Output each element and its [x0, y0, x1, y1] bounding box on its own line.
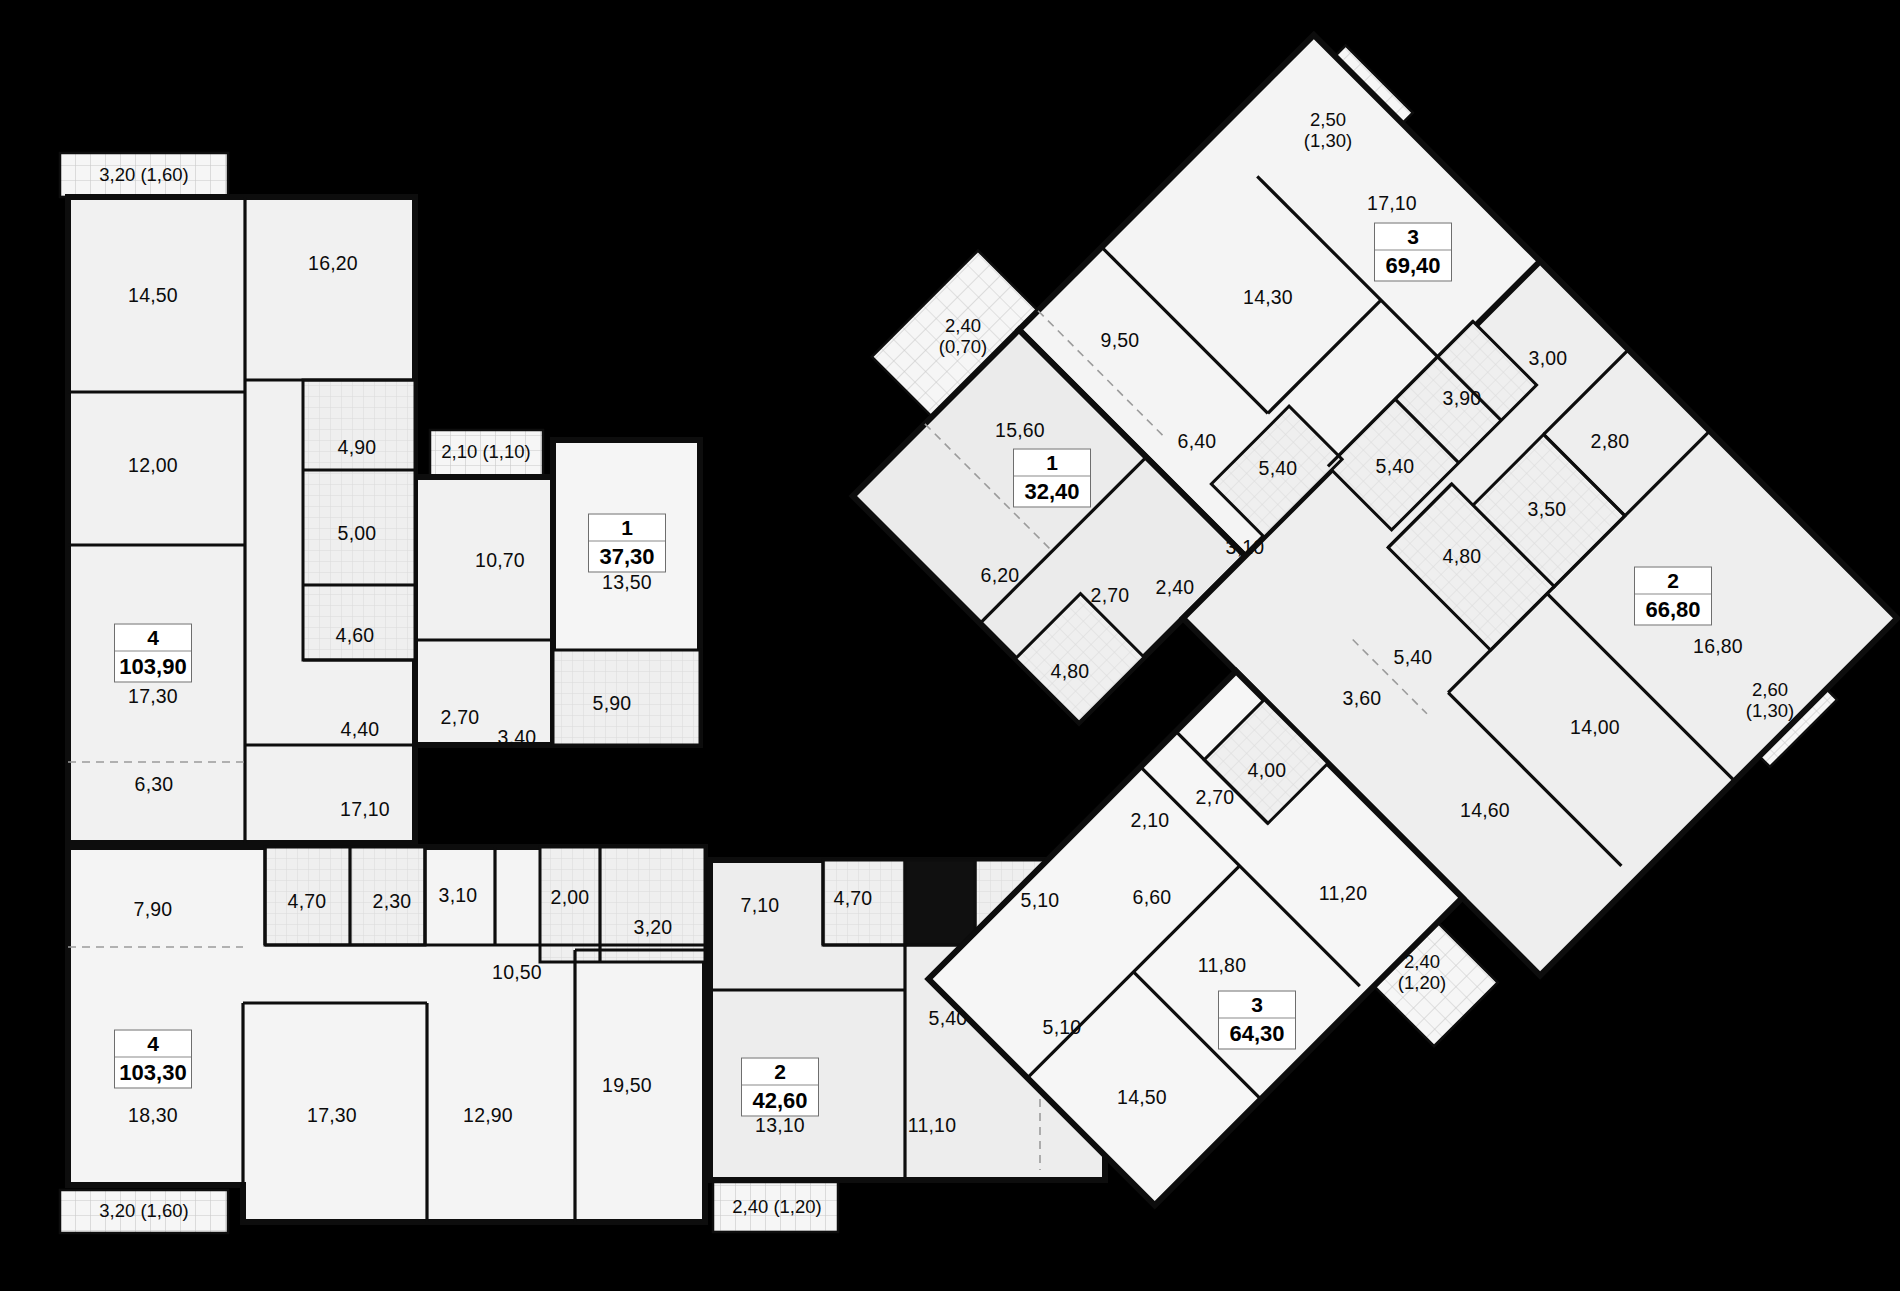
- room-area-label: 14,50: [1117, 1086, 1167, 1109]
- apartment-total-area: 64,30: [1219, 1019, 1295, 1049]
- apartment-id-badge: 3 69,40: [1374, 223, 1452, 282]
- apartment-number: 1: [589, 515, 665, 542]
- room-area-label: 17,10: [1367, 192, 1417, 215]
- apartment-total-area: 32,40: [1014, 477, 1090, 507]
- room-area-label: 12,90: [463, 1104, 513, 1127]
- apartment-total-area: 103,30: [115, 1058, 191, 1088]
- balcony-area-label: 2,40 (1,20): [687, 1197, 867, 1218]
- room-area-label: 5,00: [338, 522, 377, 545]
- room-area-label: 7,90: [134, 898, 173, 921]
- room-area-label: 11,10: [908, 1114, 956, 1137]
- room-area-label: 17,10: [340, 798, 390, 821]
- apartment-id-badge: 2 66,80: [1634, 567, 1712, 626]
- balcony-area-label: 2,40 (0,70): [920, 316, 1006, 357]
- room-area-label: 2,40: [1156, 576, 1195, 599]
- apartment-id-badge: 3 64,30: [1218, 991, 1296, 1050]
- room-area-label: 2,00: [551, 886, 590, 909]
- room-area-label: 6,60: [1133, 886, 1172, 909]
- room-area-label: 5,90: [593, 692, 632, 715]
- room-area-label: 4,40: [341, 718, 380, 741]
- room-area-label: 5,10: [1021, 889, 1060, 912]
- apartment-id-badge: 4 103,90: [114, 624, 192, 683]
- balcony-area-label: 3,20 (1,60): [54, 165, 234, 186]
- balcony-area-label: 2,50 (1,30): [1285, 110, 1371, 151]
- balcony-area-label: 2,10 (1,10): [396, 442, 576, 463]
- apartment-number: 3: [1219, 992, 1295, 1019]
- apartment-id-badge: 1 32,40: [1013, 449, 1091, 508]
- room-area-label: 9,50: [1101, 329, 1140, 352]
- room-area-label: 5,40: [929, 1007, 968, 1030]
- room-area-label: 3,50: [1528, 498, 1567, 521]
- room-area-label: 13,50: [602, 571, 652, 594]
- apartment-id-badge: 2 42,60: [741, 1058, 819, 1117]
- room-area-label: 3,00: [1529, 347, 1568, 370]
- room-area-label: 11,80: [1198, 954, 1246, 977]
- room-area-label: 2,80: [1591, 430, 1630, 453]
- room-area-label: 18,30: [128, 1104, 178, 1127]
- room-area-label: 3,40: [498, 726, 537, 749]
- room-area-label: 19,50: [602, 1074, 652, 1097]
- room-area-label: 5,40: [1376, 455, 1415, 478]
- room-area-label: 3,20: [634, 916, 673, 939]
- labels-layer: 3,20 (1,60) 14,50 16,20 12,00 4,90 5,00 …: [0, 0, 1900, 1291]
- room-area-label: 4,80: [1443, 545, 1482, 568]
- room-area-label: 16,20: [308, 252, 358, 275]
- balcony-area-label: 2,40 (1,20): [1379, 952, 1465, 993]
- room-area-label: 4,00: [1248, 759, 1287, 782]
- room-area-label: 3,10: [439, 884, 478, 907]
- room-area-label: 16,80: [1693, 635, 1743, 658]
- apartment-id-badge: 4 103,30: [114, 1030, 192, 1089]
- room-area-label: 15,60: [995, 419, 1045, 442]
- balcony-area-label: 3,20 (1,60): [54, 1201, 234, 1222]
- room-area-label: 2,10: [1131, 809, 1170, 832]
- room-area-label: 4,70: [288, 890, 327, 913]
- apartment-number: 2: [742, 1059, 818, 1086]
- room-area-label: 10,70: [475, 549, 525, 572]
- room-area-label: 3,60: [1343, 687, 1382, 710]
- room-area-label: 6,30: [135, 773, 174, 796]
- room-area-label: 3,90: [1443, 387, 1482, 410]
- room-area-label: 17,30: [307, 1104, 357, 1127]
- apartment-total-area: 103,90: [115, 652, 191, 682]
- room-area-label: 14,30: [1243, 286, 1293, 309]
- apartment-total-area: 69,40: [1375, 251, 1451, 281]
- apartment-number: 2: [1635, 568, 1711, 595]
- room-area-label: 2,70: [441, 706, 480, 729]
- room-area-label: 10,50: [492, 961, 542, 984]
- room-area-label: 6,40: [1178, 430, 1217, 453]
- room-area-label: 6,20: [981, 564, 1020, 587]
- balcony-area-label: 2,60 (1,30): [1727, 680, 1813, 721]
- apartment-number: 3: [1375, 224, 1451, 251]
- room-area-label: 13,10: [755, 1114, 805, 1137]
- room-area-label: 12,00: [128, 454, 178, 477]
- room-area-label: 3,10: [1226, 536, 1265, 559]
- room-area-label: 4,60: [336, 624, 375, 647]
- room-area-label: 14,50: [128, 284, 178, 307]
- apartment-total-area: 37,30: [589, 542, 665, 572]
- room-area-label: 4,80: [1051, 660, 1090, 683]
- room-area-label: 2,70: [1196, 786, 1235, 809]
- apartment-number: 1: [1014, 450, 1090, 477]
- room-area-label: 14,60: [1460, 799, 1510, 822]
- room-area-label: 5,40: [1394, 646, 1433, 669]
- room-area-label: 7,10: [741, 894, 780, 917]
- apartment-total-area: 42,60: [742, 1086, 818, 1116]
- room-area-label: 4,90: [338, 436, 377, 459]
- room-area-label: 2,70: [1091, 584, 1130, 607]
- room-area-label: 5,10: [1043, 1016, 1082, 1039]
- apartment-number: 4: [115, 1031, 191, 1058]
- room-area-label: 5,40: [1259, 457, 1298, 480]
- floor-plan: 3,20 (1,60) 14,50 16,20 12,00 4,90 5,00 …: [0, 0, 1900, 1291]
- room-area-label: 14,00: [1570, 716, 1620, 739]
- apartment-total-area: 66,80: [1635, 595, 1711, 625]
- room-area-label: 4,70: [834, 887, 873, 910]
- room-area-label: 17,30: [128, 685, 178, 708]
- room-area-label: 2,30: [373, 890, 412, 913]
- room-area-label: 11,20: [1319, 882, 1367, 905]
- apartment-number: 4: [115, 625, 191, 652]
- apartment-id-badge: 1 37,30: [588, 514, 666, 573]
